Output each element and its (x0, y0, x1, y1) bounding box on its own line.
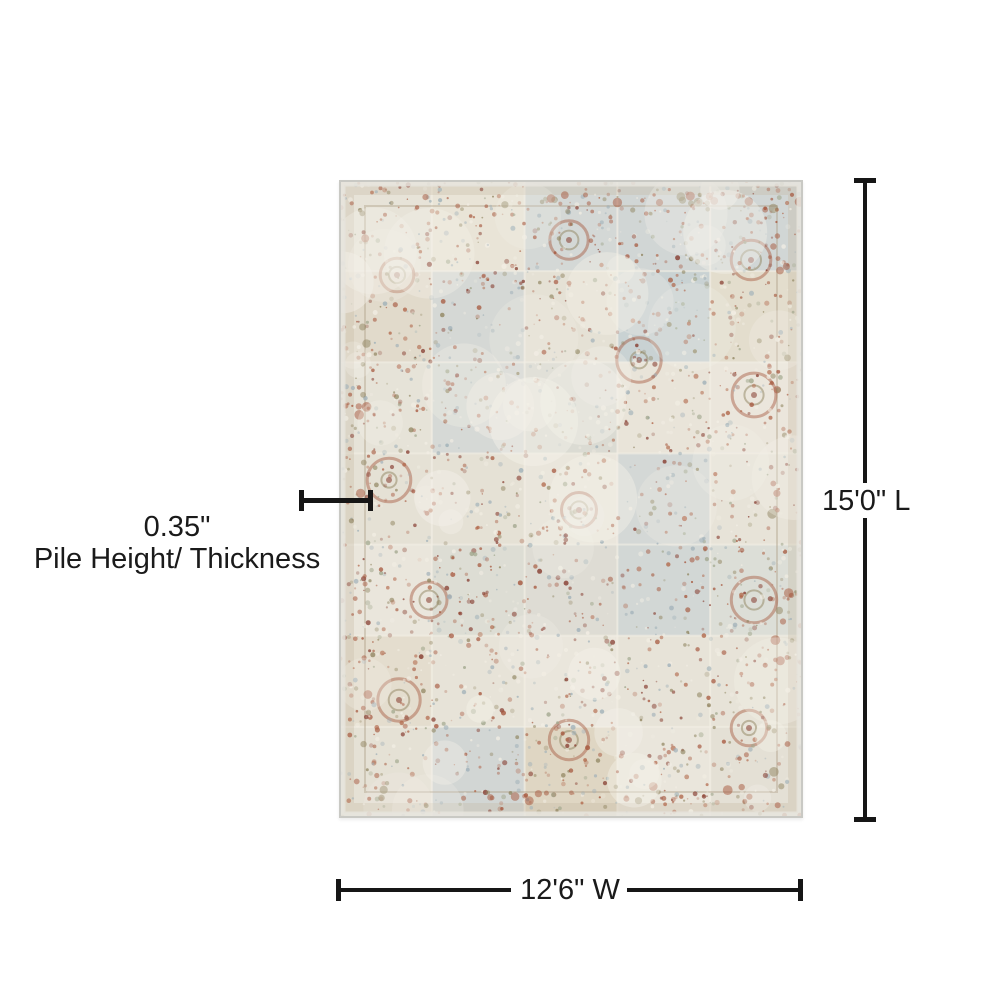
length-dimension-cap-top (854, 178, 876, 183)
pile-height-dimension-cap-left (299, 490, 304, 511)
rug-image (339, 180, 803, 818)
pile-height-dimension-cap-right (368, 490, 373, 511)
pile-height-caption: Pile Height/ Thickness (34, 544, 320, 576)
rug-pattern-graphic (339, 180, 803, 818)
length-dimension-cap-bottom (854, 817, 876, 822)
pile-height-label: 0.35" Pile Height/ Thickness (34, 512, 320, 576)
length-dimension-line-lower (863, 518, 867, 819)
width-label: 12'6" W (520, 875, 620, 907)
width-dimension-line-right (627, 888, 799, 892)
pile-height-value: 0.35" (34, 512, 320, 544)
pile-height-dimension-line (302, 498, 371, 503)
length-dimension-line-upper (863, 181, 867, 483)
width-dimension-cap-right (798, 879, 803, 901)
width-dimension-cap-left (336, 879, 341, 901)
width-dimension-line-left (339, 888, 511, 892)
product-dimension-diagram: 15'0" L 12'6" W 0.35" Pile Height/ Thick… (0, 0, 1000, 1000)
length-label: 15'0" L (822, 486, 910, 518)
